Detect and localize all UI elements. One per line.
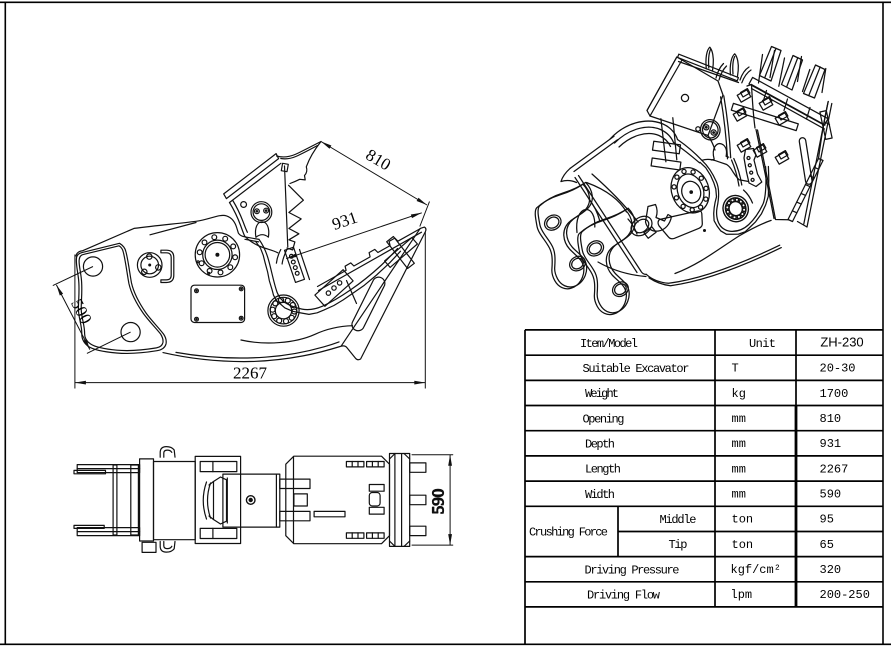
svg-text:mm: mm xyxy=(732,437,746,451)
svg-text:lpm: lpm xyxy=(731,588,753,602)
svg-text:Unit: Unit xyxy=(749,337,776,351)
svg-text:ton: ton xyxy=(732,513,754,527)
svg-text:200-250: 200-250 xyxy=(820,588,870,602)
svg-text:Driving Pressure: Driving Pressure xyxy=(585,563,680,577)
svg-text:Tip: Tip xyxy=(669,538,688,552)
svg-text:500: 500 xyxy=(67,296,96,327)
svg-text:20-30: 20-30 xyxy=(820,362,856,376)
svg-text:Depth: Depth xyxy=(585,438,615,452)
svg-text:810: 810 xyxy=(820,412,842,426)
svg-text:Opening: Opening xyxy=(583,412,625,426)
svg-text:590: 590 xyxy=(429,489,448,515)
svg-text:931: 931 xyxy=(820,437,842,451)
svg-text:931: 931 xyxy=(330,208,360,234)
svg-text:65: 65 xyxy=(820,538,834,552)
svg-text:95: 95 xyxy=(820,513,834,527)
svg-text:Weight: Weight xyxy=(585,387,619,401)
svg-text:Driving Flow: Driving Flow xyxy=(587,588,661,602)
svg-text:Item/Model: Item/Model xyxy=(580,337,638,351)
svg-text:kgf/cm²: kgf/cm² xyxy=(731,563,781,577)
svg-text:mm: mm xyxy=(732,488,746,502)
svg-text:Middle: Middle xyxy=(660,513,697,527)
svg-text:590: 590 xyxy=(820,488,842,502)
svg-text:ton: ton xyxy=(732,538,754,552)
svg-text:kg: kg xyxy=(732,387,746,401)
svg-text:T: T xyxy=(732,362,739,376)
svg-text:mm: mm xyxy=(732,462,746,476)
svg-text:ZH-230: ZH-230 xyxy=(820,334,863,349)
svg-text:2267: 2267 xyxy=(233,364,268,383)
svg-text:810: 810 xyxy=(363,145,395,174)
svg-text:1700: 1700 xyxy=(820,387,849,401)
svg-text:Length: Length xyxy=(585,463,621,477)
svg-text:mm: mm xyxy=(732,412,746,426)
svg-text:320: 320 xyxy=(820,563,842,577)
svg-text:Crushing Force: Crushing Force xyxy=(529,526,608,540)
svg-text:2267: 2267 xyxy=(820,462,849,476)
svg-text:Width: Width xyxy=(585,488,615,502)
svg-text:Suitable Excavator: Suitable Excavator xyxy=(583,362,690,376)
